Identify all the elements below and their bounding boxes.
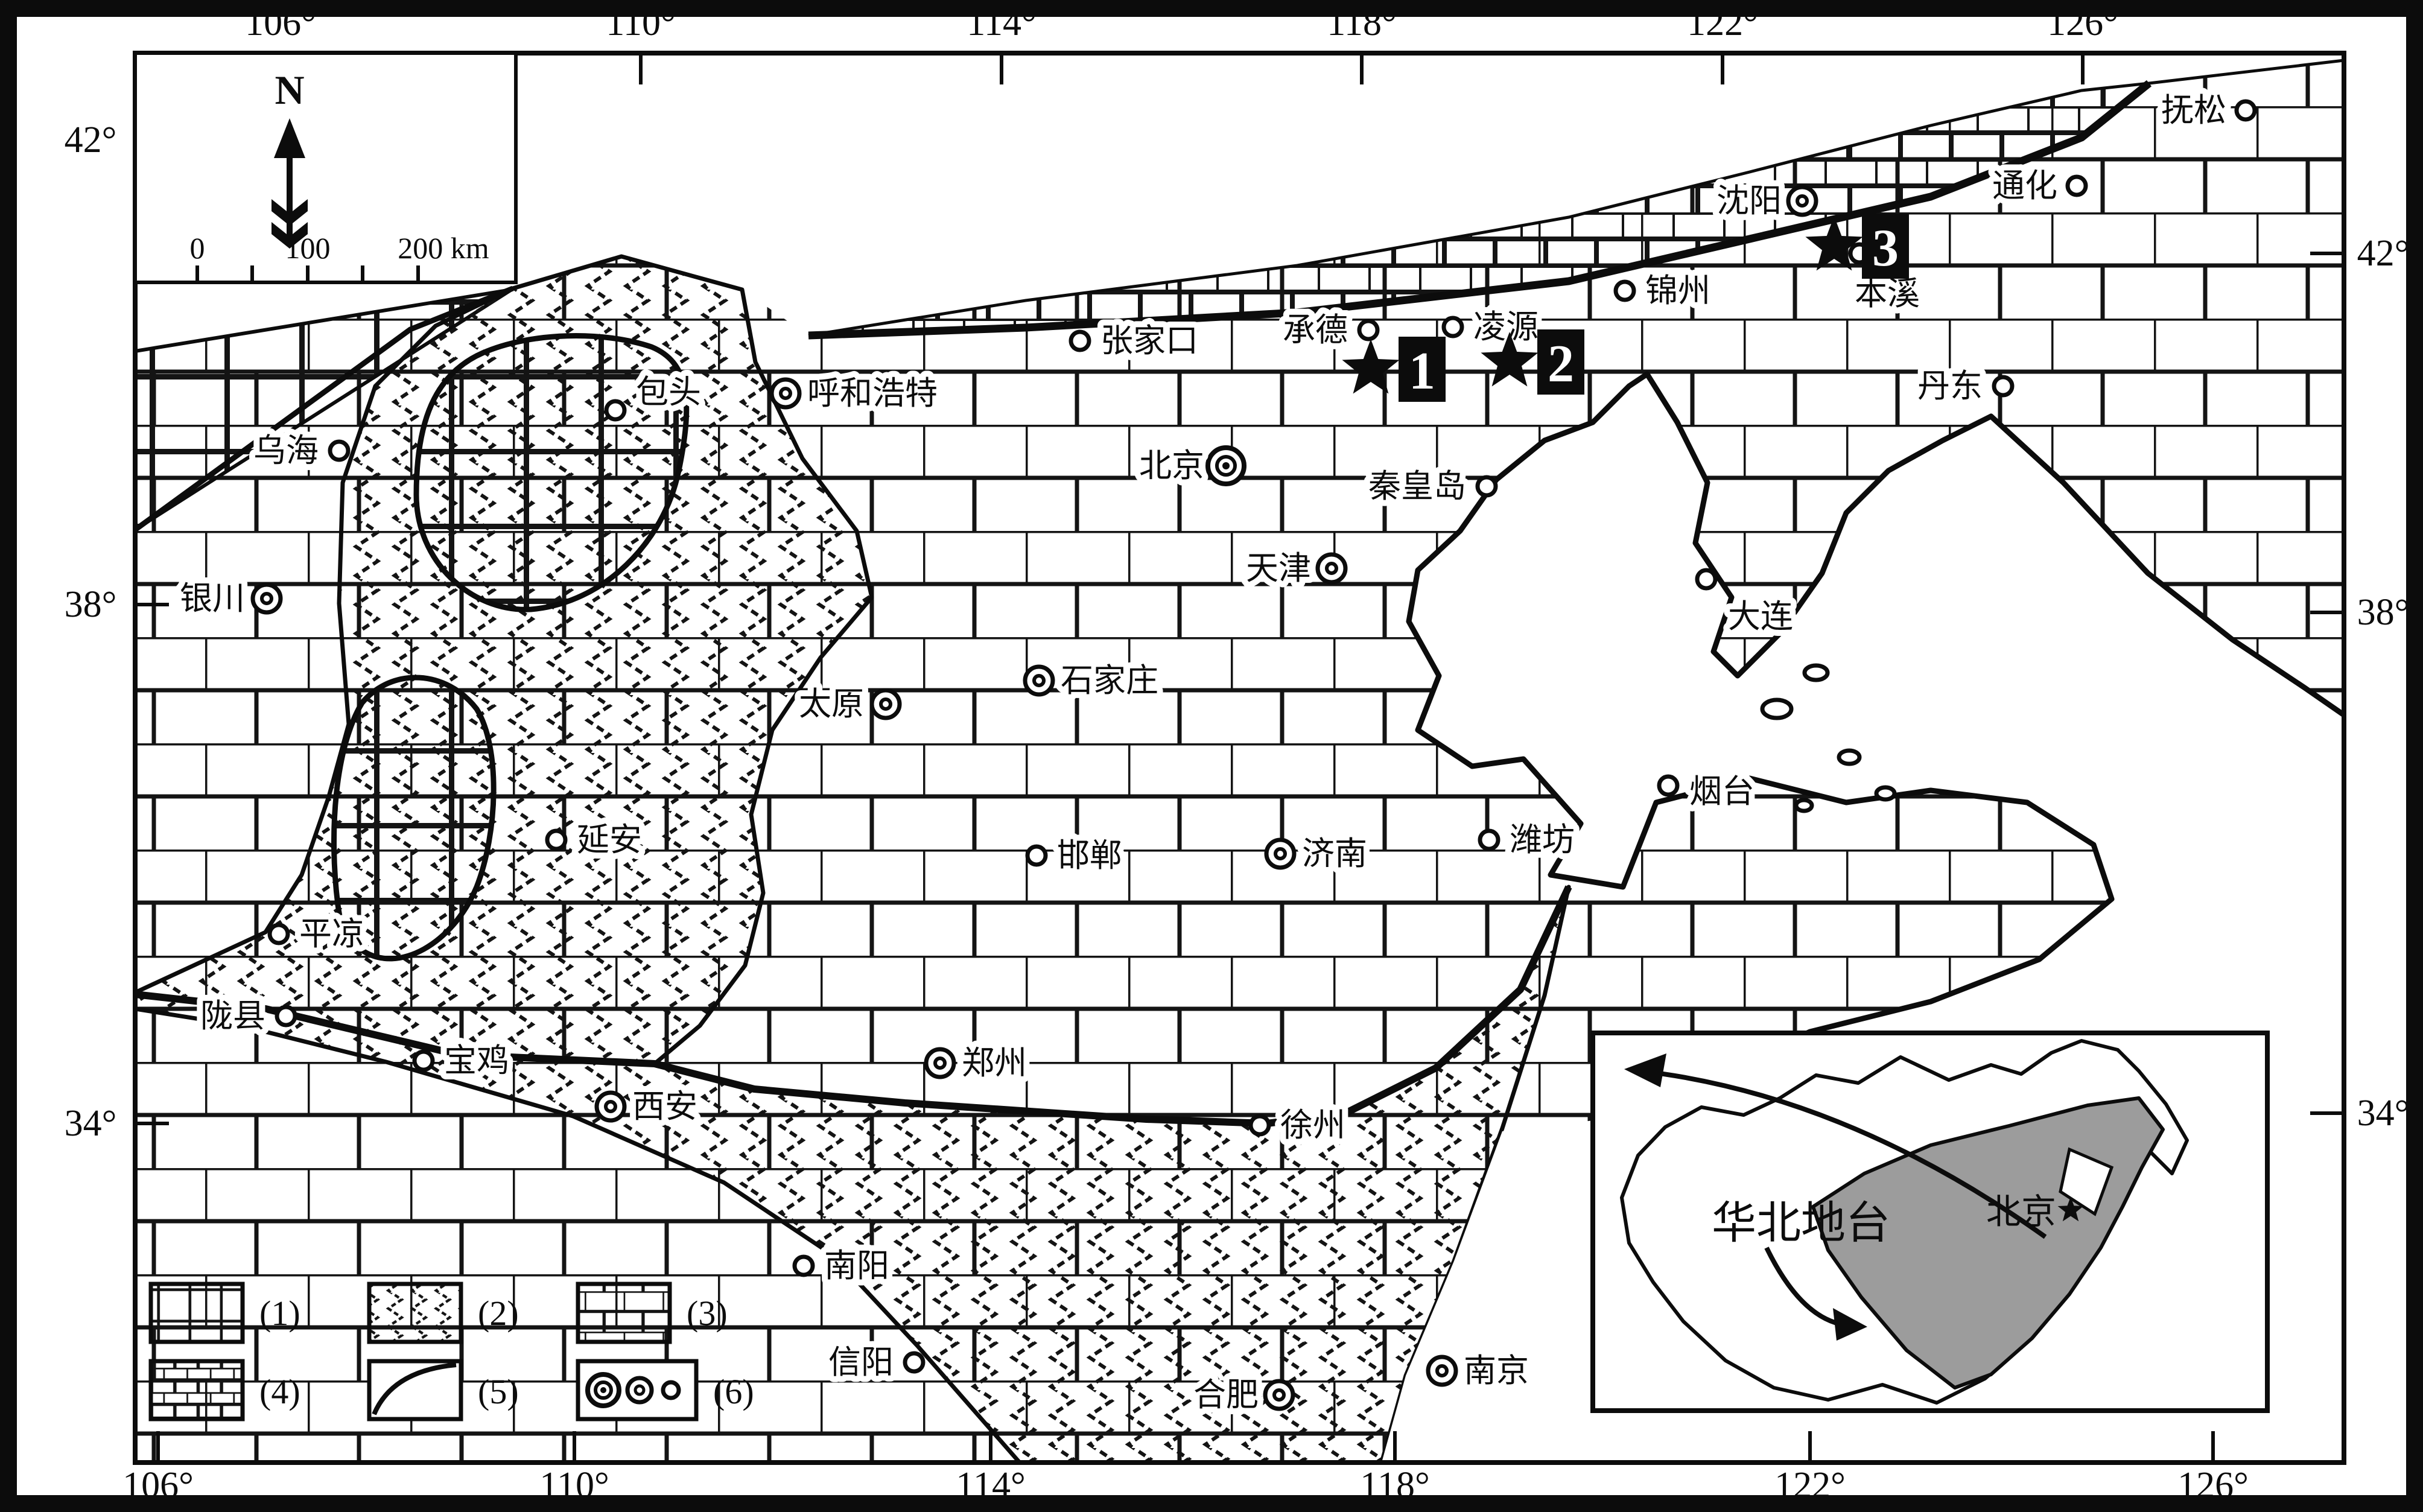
city-marker-icon <box>795 1257 813 1275</box>
city-合肥: 合肥 <box>1193 1377 1293 1413</box>
city-银川: 银川 <box>180 580 281 617</box>
city-南京: 南京 <box>1428 1353 1529 1389</box>
city-郑州: 郑州 <box>926 1045 1027 1081</box>
city-label: 通化 <box>1992 168 2057 204</box>
city-marker-icon <box>1071 332 1089 350</box>
city-label: 陇县 <box>200 998 265 1034</box>
province-marker-icon <box>1788 187 1816 215</box>
province-marker-icon <box>1266 840 1294 868</box>
city-label: 张家口 <box>1100 323 1198 359</box>
city-label: 石家庄 <box>1061 662 1158 699</box>
legend-label-large-brick-pattern: (3) <box>687 1294 728 1333</box>
city-label: 承德 <box>1283 312 1348 348</box>
city-marker-icon <box>905 1353 923 1371</box>
legend-swatch-small-brick <box>151 1361 243 1419</box>
city-marker-icon <box>1659 777 1677 795</box>
city-marker-icon <box>1359 321 1377 339</box>
province-marker-icon <box>1428 1357 1456 1385</box>
north-scale-box: N 0100200 km <box>135 53 516 282</box>
city-label: 烟台 <box>1689 773 1755 810</box>
city-label: 南阳 <box>824 1248 889 1284</box>
legend-province-icon <box>627 1378 652 1402</box>
city-济南: 济南 <box>1266 836 1367 872</box>
legend-swatch-boundary <box>369 1361 461 1419</box>
inset-map: 华北地台 北京 <box>1593 1033 2267 1411</box>
legend-label-city-symbols: (6) <box>713 1372 754 1411</box>
city-marker-icon <box>1697 570 1715 588</box>
city-label: 平凉 <box>299 916 364 952</box>
city-marker-icon <box>414 1052 433 1070</box>
city-label: 济南 <box>1302 836 1367 872</box>
city-西安: 西安 <box>597 1088 697 1125</box>
city-marker-icon <box>1480 831 1498 849</box>
legend-label-grid-pattern: (1) <box>259 1294 300 1333</box>
city-marker-icon <box>2237 101 2255 119</box>
province-marker-icon <box>253 585 281 612</box>
city-label: 西安 <box>632 1088 697 1125</box>
province-marker-icon <box>872 690 900 718</box>
site-number: 2 <box>1548 335 1574 393</box>
city-label: 包头 <box>636 374 701 410</box>
north-label: N <box>275 67 304 113</box>
scale-label: 100 <box>285 231 331 265</box>
city-label: 丹东 <box>1917 368 1983 404</box>
city-label: 延安 <box>577 822 642 858</box>
city-label: 北京 <box>1139 448 1204 484</box>
city-marker-icon <box>1444 318 1462 336</box>
city-label: 合肥 <box>1193 1377 1259 1413</box>
city-marker-icon <box>277 1007 295 1025</box>
city-label: 天津 <box>1246 550 1311 586</box>
city-marker-icon <box>606 401 624 419</box>
lat-label-right: 38° <box>2357 592 2410 633</box>
city-label: 凌源 <box>1473 309 1539 345</box>
legend-label-small-brick-pattern: (4) <box>259 1372 300 1411</box>
geological-map-figure: 106°110°114°118°122°126°106°110°114°118°… <box>0 0 2423 1512</box>
lat-label-left: 34° <box>65 1103 117 1144</box>
city-marker-icon <box>270 925 288 943</box>
city-label: 潍坊 <box>1510 822 1575 858</box>
legend-capital-icon <box>588 1374 619 1406</box>
city-marker-icon <box>2068 177 2086 195</box>
capital-marker-icon <box>1222 462 1230 469</box>
city-太原: 太原 <box>799 686 900 722</box>
scale-label: 0 <box>190 231 205 265</box>
city-label: 秦皇岛 <box>1368 468 1466 504</box>
city-marker-icon <box>1251 1116 1269 1134</box>
legend-city-icon <box>663 1382 679 1398</box>
city-marker-icon <box>1027 847 1046 865</box>
city-label: 邯郸 <box>1057 837 1122 874</box>
city-北京: 北京 <box>1139 448 1244 484</box>
legend-swatch-grid <box>151 1284 243 1342</box>
legend-swatch-herringbone <box>369 1284 461 1342</box>
city-label: 银川 <box>180 580 245 617</box>
city-label: 徐州 <box>1280 1107 1345 1143</box>
city-label: 南京 <box>1464 1353 1529 1389</box>
city-marker-icon <box>330 442 348 460</box>
legend-label-herringbone-pattern: (2) <box>478 1294 519 1333</box>
province-marker-icon <box>1318 554 1345 582</box>
legend-swatch-large-brick <box>578 1284 670 1342</box>
province-marker-icon <box>597 1093 624 1120</box>
city-label: 大连 <box>1728 599 1793 635</box>
lat-label-right: 34° <box>2357 1093 2410 1134</box>
lat-label-right: 42° <box>2357 233 2410 274</box>
city-label: 太原 <box>799 686 864 722</box>
lat-label-left: 38° <box>65 584 117 625</box>
legend-label-boundary-line: (5) <box>478 1372 519 1411</box>
city-label: 呼和浩特 <box>807 375 938 411</box>
city-沈阳: 沈阳 <box>1716 183 1816 219</box>
city-marker-icon <box>547 831 565 849</box>
city-label: 抚松 <box>2161 92 2226 129</box>
province-marker-icon <box>772 380 799 407</box>
city-label: 宝鸡 <box>444 1043 509 1079</box>
city-label: 乌海 <box>253 433 319 469</box>
city-石家庄: 石家庄 <box>1025 662 1158 699</box>
city-label: 信阳 <box>828 1344 894 1380</box>
province-marker-icon <box>926 1049 954 1077</box>
city-marker-icon <box>1994 377 2012 395</box>
city-天津: 天津 <box>1246 550 1345 586</box>
city-label: 郑州 <box>962 1045 1027 1081</box>
city-label: 锦州 <box>1645 273 1710 309</box>
inset-platform-label: 华北地台 <box>1712 1199 1890 1248</box>
lat-label-left: 42° <box>65 119 117 160</box>
site-number: 3 <box>1872 219 1899 278</box>
province-marker-icon <box>1265 1381 1293 1409</box>
site-number: 1 <box>1409 342 1435 401</box>
inset-capital-label: 北京 <box>1986 1192 2056 1231</box>
city-label: 本溪 <box>1855 276 1920 312</box>
city-label: 沈阳 <box>1716 183 1782 219</box>
city-marker-icon <box>1478 477 1496 495</box>
province-marker-icon <box>1025 667 1053 694</box>
scale-label: 200 km <box>398 231 489 265</box>
city-marker-icon <box>1616 282 1634 300</box>
